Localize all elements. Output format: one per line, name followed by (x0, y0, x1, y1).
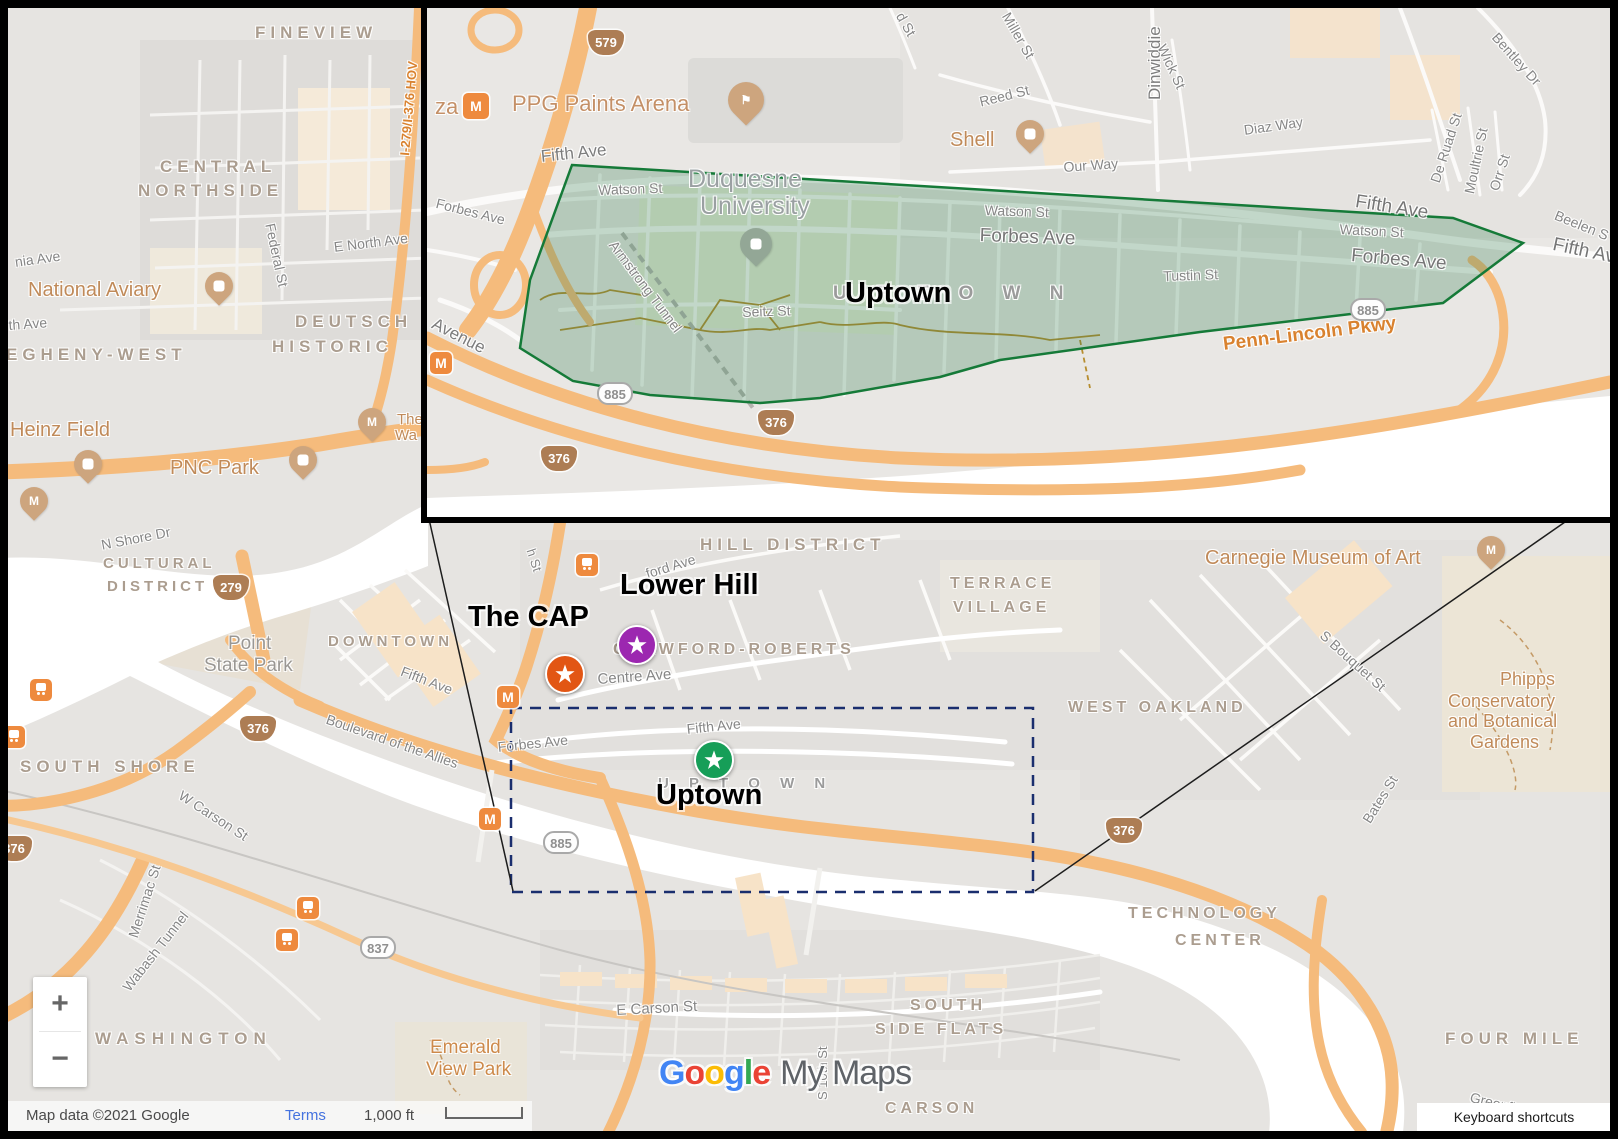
marker-the-cap[interactable] (545, 654, 585, 694)
poi-label-phipps-1: Phipps (1500, 670, 1555, 689)
marker-label-uptown: Uptown (656, 780, 762, 810)
area-label-central: CENTRAL (160, 158, 276, 176)
keyboard-shortcuts-button[interactable]: Keyboard shortcuts (1417, 1103, 1611, 1131)
map-data-attribution: Map data ©2021 Google (26, 1107, 190, 1124)
poi-label-phipps-3: and Botanical (1448, 712, 1557, 731)
star-icon (704, 750, 724, 770)
star-icon (555, 664, 575, 684)
poi-label-pnc-park: PNC Park (170, 458, 259, 479)
area-label-south: SOUTH (910, 998, 986, 1015)
google-my-maps-watermark: GoogleMy Maps (659, 1054, 911, 1093)
area-label-downtown: DOWNTOWN (328, 634, 453, 650)
train-station-icon-5 (276, 929, 298, 951)
route-shield-885-icon-main: 885 (543, 831, 579, 854)
frame-right (1610, 0, 1618, 1139)
marker-label-lower-hill: Lower Hill (620, 570, 759, 600)
street-label-th-ave: th Ave (8, 315, 48, 332)
area-label-cultural: CULTURAL (103, 556, 216, 572)
logo-letter: l (744, 1054, 752, 1092)
park-label-emerald-2: View Park (426, 1060, 511, 1080)
inset-border-bottom (421, 517, 1618, 523)
metro-station-icon: M (463, 93, 489, 119)
metro-station-icon-main: M (497, 686, 519, 708)
frame-left (0, 0, 8, 1139)
metro-station-icon-main-2: M (479, 808, 501, 830)
area-label-technology: TECHNOLOGY (1128, 906, 1281, 923)
park-label-point-1: Point (228, 634, 271, 654)
marker-label-the-cap: The CAP (468, 602, 589, 632)
marker-lower-hill[interactable] (617, 625, 657, 665)
logo-letter: g (724, 1054, 744, 1092)
route-shield-837-icon: 837 (360, 936, 396, 959)
frame-top (0, 0, 1618, 8)
metro-station-icon-2: M (430, 352, 452, 374)
poi-label-shell: Shell (950, 130, 994, 151)
marker-uptown[interactable] (694, 740, 734, 780)
street-label-watson-st-2: Watson St (984, 203, 1049, 220)
area-label-west-oakland: WEST OAKLAND (1068, 700, 1247, 717)
route-shield-885-icon: 885 (597, 382, 633, 405)
logo-letter: e (752, 1054, 770, 1092)
map-canvas[interactable]: PPG Paints Arena za M Fifth Ave Watson S… (0, 0, 1618, 1139)
area-label-carson: CARSON (885, 1101, 978, 1118)
street-label-seitz-st: Seitz St (742, 303, 791, 319)
poi-label-phipps-4: Gardens (1470, 733, 1539, 752)
train-station-icon-2 (30, 679, 52, 701)
area-label-allegheny-west: EGHENY-WEST (6, 346, 187, 364)
area-label-district: DISTRICT (107, 579, 208, 595)
attribution-bar: Map data ©2021 Google Terms 1,000 ft (8, 1101, 532, 1131)
area-label-south-shore: SOUTH SHORE (20, 758, 200, 776)
region-label-uptown-inset: Uptown (845, 278, 951, 308)
inset-border-left (421, 8, 427, 523)
poi-label-wa: Wa (395, 428, 417, 444)
poi-label-plaza: za (435, 95, 458, 118)
poi-label-national-aviary: National Aviary (28, 280, 161, 301)
street-label-watson-st-3: Watson St (1339, 222, 1404, 240)
area-label-washington: WASHINGTON (95, 1030, 272, 1048)
park-label-point-2: State Park (204, 656, 293, 676)
street-label-watson-st: Watson St (598, 181, 663, 198)
frame-bottom (0, 1131, 1618, 1139)
poi-label-heinz-field: Heinz Field (10, 420, 110, 441)
star-icon (627, 635, 647, 655)
street-label-forbes-ave-2: Forbes Ave (979, 226, 1075, 249)
zoom-out-button[interactable]: − (33, 1032, 87, 1086)
area-label-four-mile: FOUR MILE (1445, 1030, 1584, 1048)
logo-letter: o (684, 1054, 704, 1092)
park-label-emerald-1: Emerald (430, 1038, 501, 1058)
train-station-icon-4 (297, 897, 319, 919)
area-label-fineview: FINEVIEW (255, 24, 377, 42)
my-maps-label: My Maps (780, 1054, 911, 1092)
screenshot-frame: PPG Paints Arena za M Fifth Ave Watson S… (0, 0, 1618, 1139)
area-label-hill-district: HILL DISTRICT (700, 536, 886, 554)
poi-label-carnegie: Carnegie Museum of Art (1205, 548, 1421, 569)
zoom-control: + − (33, 977, 87, 1087)
route-shield-885-icon-2: 885 (1350, 298, 1386, 321)
area-label-center: CENTER (1175, 933, 1265, 950)
scale-text: 1,000 ft (364, 1107, 414, 1124)
poi-label-the: The (397, 412, 423, 428)
area-label-historic: HISTORIC (272, 338, 393, 356)
poi-label-phipps-2: Conservatory (1448, 692, 1555, 711)
area-label-deutsch: DEUTSCH (295, 313, 412, 331)
street-label-tustin-st: Tustin St (1163, 267, 1218, 284)
terms-link[interactable]: Terms (285, 1107, 326, 1124)
area-label-northside: NORTHSIDE (138, 182, 283, 200)
poi-label-ppg-paints-arena: PPG Paints Arena (512, 92, 689, 115)
logo-letter: G (659, 1054, 684, 1092)
area-label-terrace: TERRACE (950, 576, 1055, 593)
area-label-village: VILLAGE (953, 600, 1050, 617)
train-station-icon (576, 554, 598, 576)
poi-label-duquesne-2: University (700, 193, 810, 219)
logo-letter: o (704, 1054, 724, 1092)
scale-bar (445, 1107, 523, 1119)
zoom-in-button[interactable]: + (33, 977, 87, 1031)
poi-label-duquesne-1: Duquesne (688, 166, 802, 192)
area-label-side-flats: SIDE FLATS (875, 1022, 1007, 1039)
